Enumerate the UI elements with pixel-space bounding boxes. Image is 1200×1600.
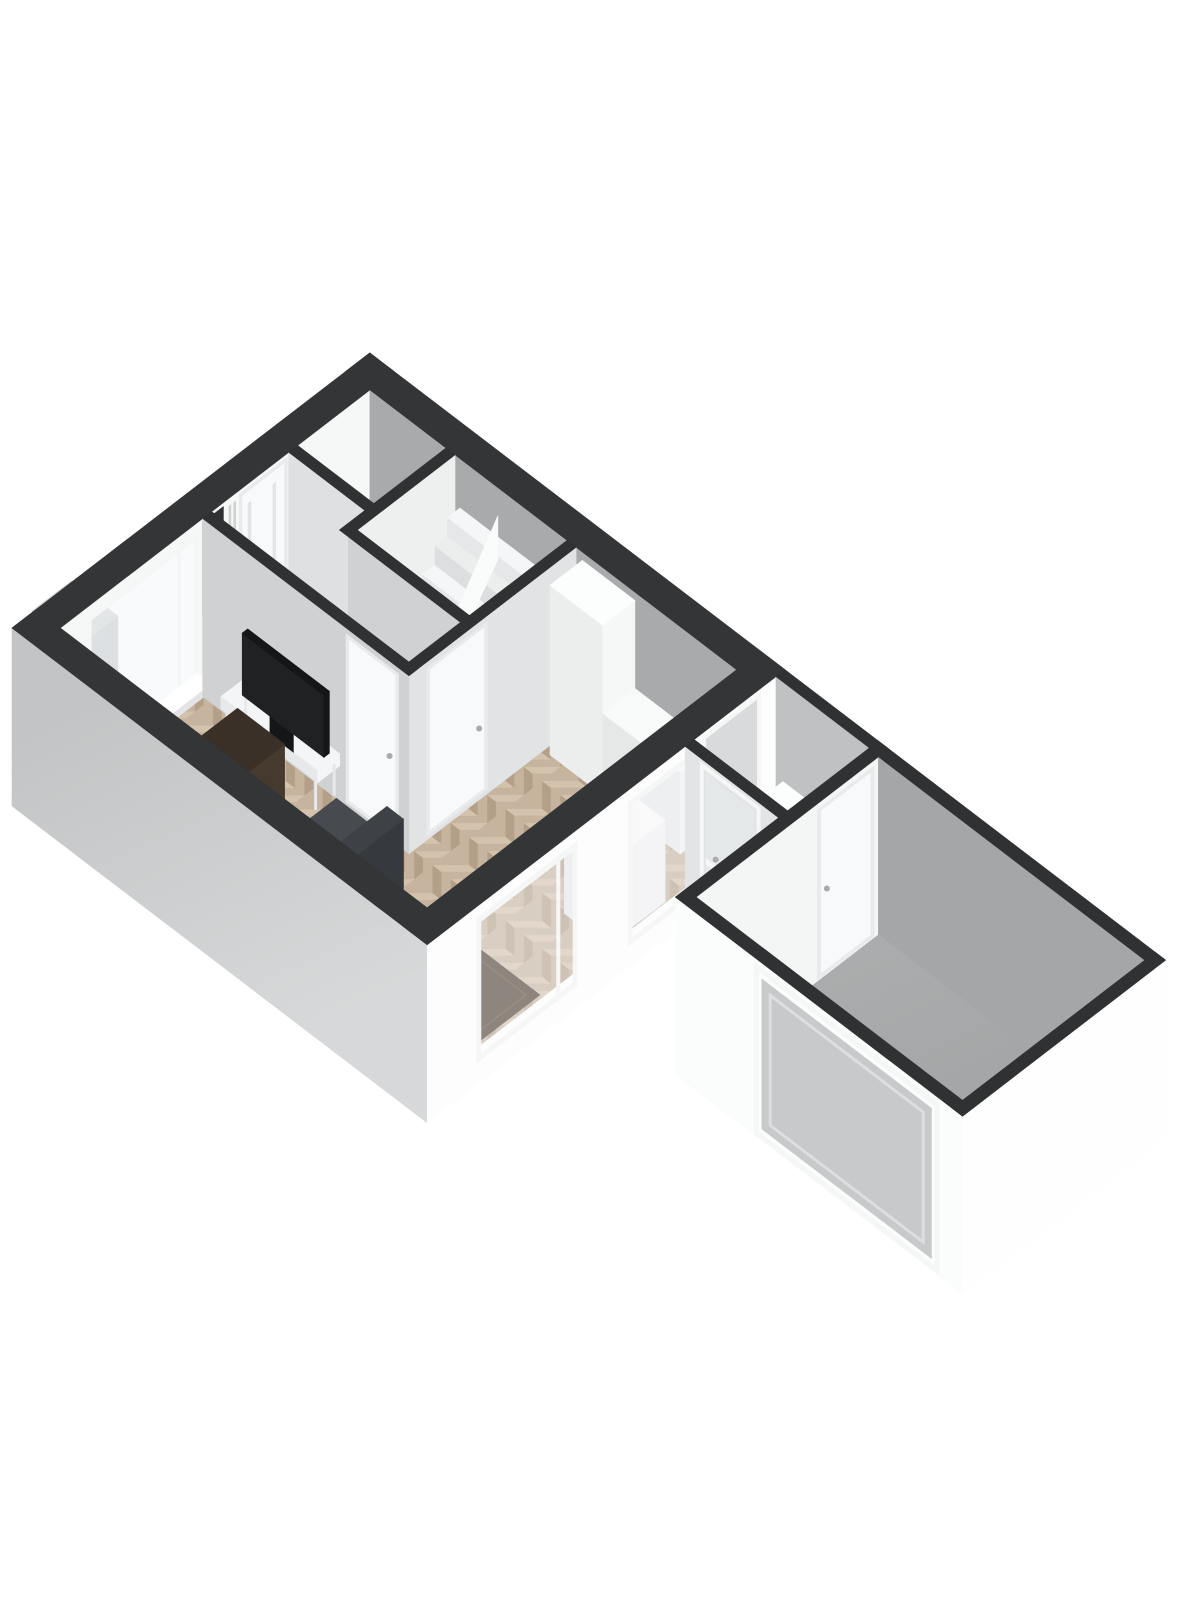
door-handle [824,886,830,892]
door-handle [713,857,719,863]
w2-frame-l [628,799,632,946]
window-nw-frame-r [195,535,198,679]
w1-frame-r [573,842,577,989]
door-handle [476,725,482,731]
door-handle [387,753,393,759]
tv-side-edge [324,691,330,757]
floor-plan-3d [0,0,1200,1600]
living-door-panel [349,640,395,835]
w1-frame-l [477,916,481,1063]
floorplan-stage [0,0,1200,1600]
